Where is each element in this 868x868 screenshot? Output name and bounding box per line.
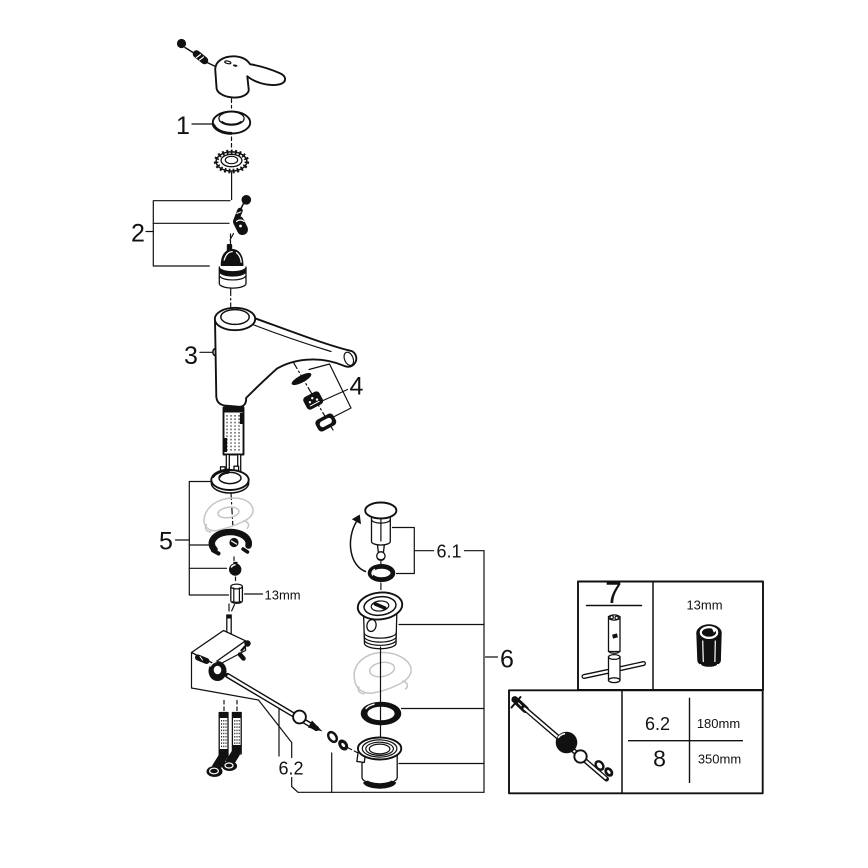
rod-table-part-0: 6.2 [645,714,670,734]
rod-table-length-1: 350mm [698,752,741,767]
callout-3: 3 [184,342,213,370]
rod-table-part-1: 8 [653,746,666,772]
tool-socket-size-label: 13mm [686,598,722,613]
nut-size-label: 13mm [265,588,301,603]
mounting-nut [231,584,243,603]
cartridge [219,244,246,288]
cartridge-adapter [230,220,244,240]
callout-1: 1 [176,112,212,140]
mounting-shank [224,408,244,472]
faucet-body [213,308,356,407]
escutcheon-ring [211,466,248,493]
drain-plug [350,503,396,590]
ghost-basin-top [204,498,253,532]
nut-size-annotation: 13mm [245,588,301,603]
supply-hoses [207,701,242,777]
pop-up-rod [228,676,362,755]
socket-nut-icon [696,624,721,668]
callout-6-1: 6.1 [393,528,485,574]
callout-5-label: 5 [159,528,173,556]
mounting-bracket [212,532,249,554]
tool-table: 7 13mm [578,577,763,690]
thread-ring [216,152,247,171]
callout-6-2-label: 6.2 [279,759,304,779]
rod-length-table: 6.2 180mm 8 350mm [509,690,763,793]
handle-screw [177,39,216,67]
lever-handle [215,56,285,97]
cap-ring [213,112,250,134]
callout-6-1-label: 6.1 [437,542,462,562]
drain-flange [356,590,403,648]
callout-4: 4 [309,364,364,418]
callout-2: 2 [131,201,230,266]
rod-table-length-0: 180mm [697,716,740,731]
ghost-basin-bottom [354,652,411,693]
callout-4-label: 4 [350,373,364,401]
drain-body [357,738,401,786]
cartridge-screw [237,195,251,219]
callout-6-label: 6 [500,646,514,674]
callout-1-label: 1 [176,112,190,140]
exploded-parts-diagram-page: 1 2 [0,0,868,868]
callout-3-label: 3 [184,342,198,370]
callout-6: 6 [399,551,514,793]
callout-2-label: 2 [131,220,145,248]
pivot-assembly [192,604,251,681]
faucet-exploded-diagram: 1 2 [0,0,868,868]
ball-stud [229,562,241,576]
